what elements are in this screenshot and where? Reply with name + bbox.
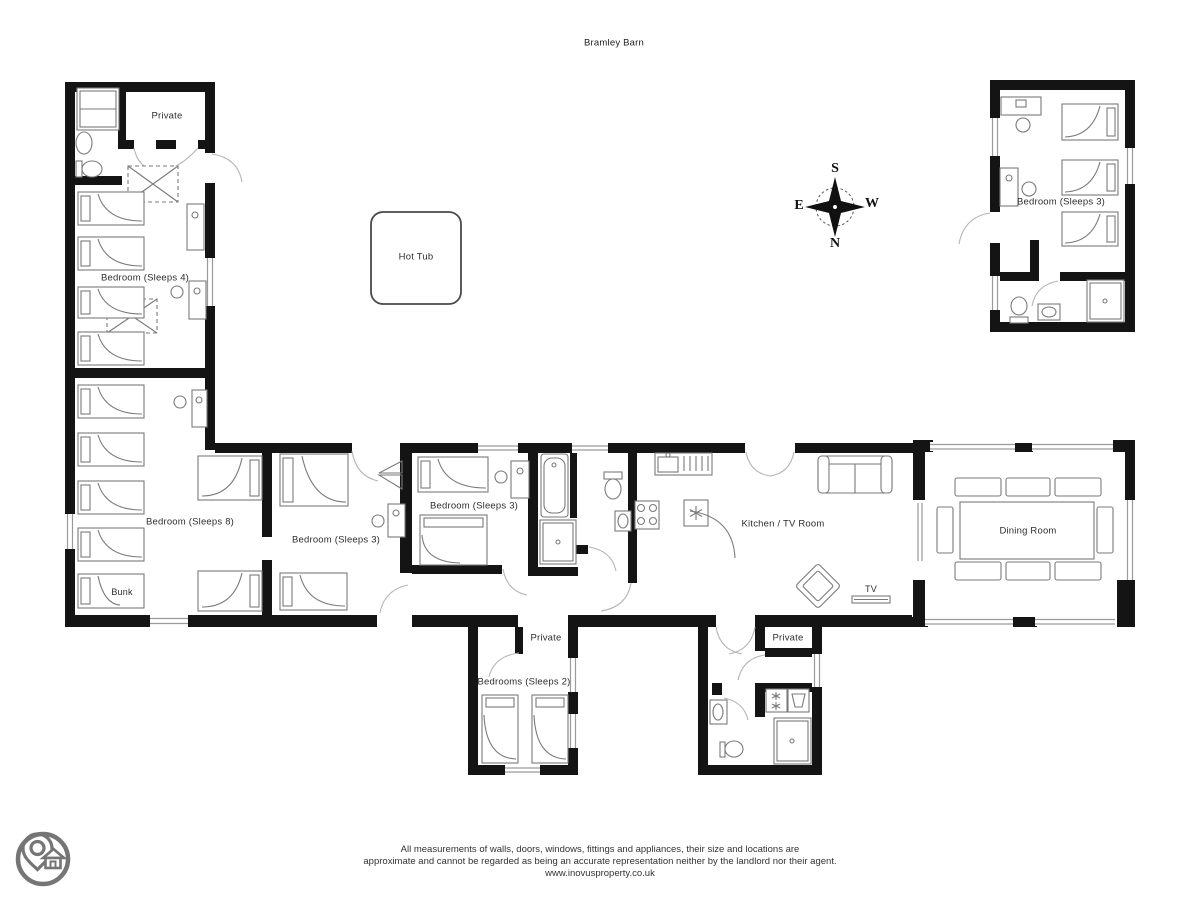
chair	[1006, 478, 1050, 496]
disclaimer-line-2: approximate and cannot be regarded as be…	[0, 856, 1200, 867]
room-label-bedroom-sleeps3-annex: Bedroom (Sleeps 3)	[1017, 197, 1105, 208]
bed	[78, 192, 144, 225]
toilet-annex	[1010, 297, 1028, 323]
bed	[1062, 212, 1118, 246]
room-label-bedroom-sleeps3-left: Bedroom (Sleeps 3)	[292, 535, 380, 546]
dresser	[388, 504, 405, 537]
chair	[1006, 562, 1050, 580]
chair	[955, 562, 1001, 580]
room-label-kitchen-tv: Kitchen / TV Room	[742, 519, 825, 530]
bed	[78, 332, 144, 365]
shower-annex	[1087, 280, 1124, 322]
chair	[1055, 478, 1101, 496]
room-label-bedroom-sleeps8: Bedroom (Sleeps 8)	[146, 517, 234, 528]
sink-annex	[1038, 304, 1060, 320]
bed	[198, 571, 262, 611]
room-label-private-top: Private	[152, 111, 183, 122]
bed	[482, 695, 518, 763]
toilet-top-left	[76, 161, 102, 177]
compass-icon	[805, 177, 865, 237]
bed	[198, 456, 262, 500]
stool	[1016, 118, 1030, 132]
bed	[420, 515, 487, 565]
dresser	[189, 281, 206, 319]
bed	[78, 385, 144, 418]
stool	[495, 471, 507, 483]
chair	[1097, 507, 1113, 553]
room-label-private-wing2: Private	[773, 633, 804, 644]
furniture	[76, 88, 1124, 764]
room-label-bedroom-sleeps4: Bedroom (Sleeps 4)	[101, 273, 189, 284]
bathtub	[541, 454, 568, 517]
compass-letter-right: W	[865, 196, 879, 212]
dresser	[511, 461, 529, 498]
floorplan-drawing	[0, 0, 1200, 900]
dresser-annex-2	[1000, 168, 1018, 206]
disclaimer-line-3: www.inovusproperty.co.uk	[0, 868, 1200, 879]
floorplan-page: Bramley Barn Private Bedroom (Sleeps 4) …	[0, 0, 1200, 900]
room-label-dining: Dining Room	[999, 526, 1056, 537]
washer	[766, 689, 787, 712]
bed	[1062, 104, 1118, 140]
bifold-door	[379, 461, 402, 489]
room-label-bedrooms-sleeps2: Bedrooms (Sleeps 2)	[477, 677, 570, 688]
shower-unit	[540, 520, 576, 564]
bed	[280, 573, 347, 610]
tv-label: TV	[865, 584, 877, 594]
room-label-private-wing1: Private	[531, 633, 562, 644]
compass-letter-top: S	[831, 161, 839, 177]
bed	[78, 528, 144, 561]
bed	[78, 237, 144, 270]
dresser-annex	[1001, 97, 1041, 115]
fridge	[684, 500, 735, 558]
tv-unit	[852, 596, 890, 603]
plan-title: Bramley Barn	[584, 38, 644, 49]
bed	[280, 454, 348, 506]
bed	[78, 481, 144, 514]
stool	[1022, 182, 1036, 196]
armchair	[795, 563, 840, 608]
bed	[1062, 160, 1118, 195]
shower-top-left	[77, 88, 119, 130]
hob	[635, 501, 659, 529]
sofa	[818, 456, 892, 493]
room-label-bunk: Bunk	[111, 587, 132, 597]
hot-tub-label: Hot Tub	[399, 252, 434, 263]
disclaimer-line-1: All measurements of walls, doors, window…	[0, 844, 1200, 855]
bed	[532, 695, 568, 763]
door-arcs	[134, 148, 1058, 720]
walls	[65, 80, 1135, 775]
bed	[78, 433, 144, 466]
dresser	[192, 390, 207, 427]
stool	[174, 396, 186, 408]
chair	[937, 507, 953, 553]
dryer	[788, 689, 809, 712]
dresser	[187, 204, 204, 250]
sink-wing2	[710, 700, 727, 724]
stool	[372, 515, 384, 527]
toilet-wing2	[720, 741, 743, 757]
compass-letter-left: E	[794, 198, 803, 214]
toilet-wc	[604, 472, 622, 499]
kitchen-sink	[655, 453, 712, 475]
chair	[1055, 562, 1101, 580]
bed	[78, 287, 144, 318]
sink-top-left	[76, 132, 92, 154]
room-label-bedroom-sleeps3-mid: Bedroom (Sleeps 3)	[430, 501, 518, 512]
bed	[418, 457, 488, 492]
sink-wc	[615, 511, 631, 531]
stool	[171, 286, 183, 298]
compass-letter-bottom: N	[830, 236, 840, 252]
chair	[955, 478, 1001, 496]
shower-wing2	[774, 718, 811, 764]
